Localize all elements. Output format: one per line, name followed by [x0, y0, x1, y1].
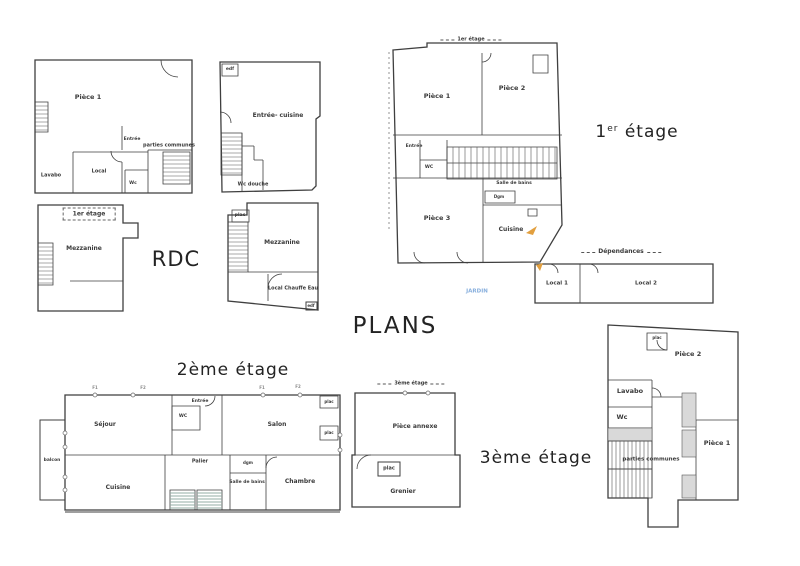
- room-label-salon: Salon: [268, 422, 287, 428]
- room-label-dgm: Dgm: [494, 195, 504, 199]
- hatched-zone: [608, 428, 652, 441]
- hatched-zone: [682, 393, 696, 427]
- room-label-piece-annexe: Pièce annexe: [393, 424, 438, 430]
- floor-title-second: 2ème étage: [177, 360, 290, 380]
- closet-box: [533, 55, 548, 73]
- room-label-grenier: Grenier: [390, 489, 415, 495]
- room-label-local2: Local 2: [635, 281, 657, 287]
- room-label-chambre: Chambre: [285, 479, 315, 485]
- room-label-piece1: Pièce 1: [704, 440, 730, 447]
- room-label-wc: Wc: [616, 414, 627, 421]
- stairs: [35, 102, 48, 132]
- room-label-wc: Wc: [129, 182, 137, 187]
- room-label-lavabo: Lavabo: [41, 174, 61, 179]
- plan-second-floor: [40, 393, 342, 512]
- page-title: PLANS: [353, 313, 438, 339]
- window-code-f1: F1: [92, 386, 98, 390]
- room-label-piece3: Pièce 3: [424, 215, 450, 222]
- floor-title-third: 3ème étage: [480, 448, 593, 468]
- plan-annex-mezzanine: [228, 203, 318, 310]
- hatched-zone: [682, 430, 696, 457]
- dash-line: [647, 252, 661, 253]
- room-label-local-chauffe-eau: Local Chauffe Eau: [268, 287, 318, 292]
- plans-document-page: PLANS RDC 1er étage 2ème étage 3ème étag…: [0, 0, 800, 566]
- plan-annex-ground: [220, 62, 320, 192]
- window-code-f2: F2: [140, 386, 146, 390]
- room-label-lavabo: Lavabo: [617, 388, 643, 395]
- room-label-edf: edf: [307, 304, 314, 308]
- room-label-plac: plac: [652, 336, 661, 340]
- room-label-entree: Entrée: [406, 145, 423, 150]
- plan-third-floor: [608, 325, 738, 527]
- orange-marker: [526, 226, 537, 235]
- stairs: [447, 147, 557, 179]
- dash-line: [488, 40, 502, 41]
- area-label-jardin: JARDIN: [466, 289, 488, 295]
- room-label-entree: Entrée: [124, 138, 141, 143]
- floor-plan-drawings: [0, 0, 800, 566]
- floor-title-first-num: 1: [595, 122, 607, 142]
- plan-first-floor: [389, 43, 713, 303]
- floor-title-first-rest: étage: [618, 122, 678, 142]
- room-label-parties-communes: parties communes: [143, 144, 195, 149]
- room-label-balcon: balcon: [44, 459, 61, 464]
- plan-header-first-floor-label: 1er étage: [457, 38, 484, 43]
- room-label-piece1: Pièce 1: [424, 93, 450, 100]
- room-label-entree: Entrée: [192, 400, 209, 405]
- room-label-salle-de-bains: Salle de bains: [229, 481, 265, 486]
- room-label-piece2: Pièce 2: [675, 351, 701, 358]
- plan-rdc-mezzanine: [38, 205, 138, 311]
- room-label-edf: edf: [226, 68, 234, 73]
- room-label-local: Local: [92, 170, 107, 175]
- window-code-f2: F2: [295, 385, 301, 389]
- room-label-plac: plac: [235, 214, 245, 219]
- room-label-wc-douche: Wc douche: [238, 183, 269, 188]
- plan-header-first-floor: 1er étage: [440, 38, 501, 43]
- plan-header-dependances: Dépendances: [581, 249, 661, 255]
- room-label-parties-communes: parties communes: [622, 457, 679, 463]
- floor-title-first: 1er étage: [595, 122, 678, 142]
- room-label-mezzanine: Mezzanine: [264, 240, 300, 246]
- room-label-dgm: dgm: [243, 461, 253, 465]
- stairs: [228, 222, 248, 272]
- room-label-mezzanine: Mezzanine: [66, 246, 102, 252]
- window-code-f1: F1: [259, 386, 265, 390]
- floor-title-rdc: RDC: [152, 247, 200, 271]
- room-label-sejour: Séjour: [94, 422, 116, 428]
- room-label-plac: plac: [324, 431, 333, 435]
- room-label-cuisine: Cuisine: [499, 227, 524, 233]
- dash-line: [581, 252, 595, 253]
- plan-header-third-floor-annex: 3ème étage: [377, 382, 444, 387]
- room-label-wc: WC: [179, 415, 187, 420]
- dash-line: [377, 384, 391, 385]
- window-box: [528, 209, 537, 216]
- room-label-plac: plac: [383, 467, 395, 472]
- room-label-local1: Local 1: [546, 281, 568, 287]
- room-label-palier: Palier: [192, 460, 208, 465]
- room-label-salle-de-bains: Salle de bains: [496, 182, 532, 187]
- room-label-entree-cuisine: Entrée- cuisine: [253, 113, 304, 119]
- hatched-zone: [682, 475, 696, 498]
- stairs: [608, 469, 652, 498]
- dependances-label: Dépendances: [598, 249, 644, 255]
- room-label-cuisine: Cuisine: [106, 485, 131, 491]
- dash-line: [431, 384, 445, 385]
- stairs: [608, 441, 652, 469]
- plan-header-third-floor-annex-label: 3ème étage: [394, 382, 427, 387]
- plan-header-1er-etage: 1er étage: [63, 208, 116, 221]
- room-label-piece2: Pièce 2: [499, 85, 525, 92]
- dash-line: [440, 40, 454, 41]
- floor-title-first-sup: er: [607, 124, 618, 134]
- room-label-piece1: Pièce 1: [75, 94, 101, 101]
- room-label-plac: plac: [324, 400, 333, 404]
- room-label-wc: WC: [425, 166, 433, 171]
